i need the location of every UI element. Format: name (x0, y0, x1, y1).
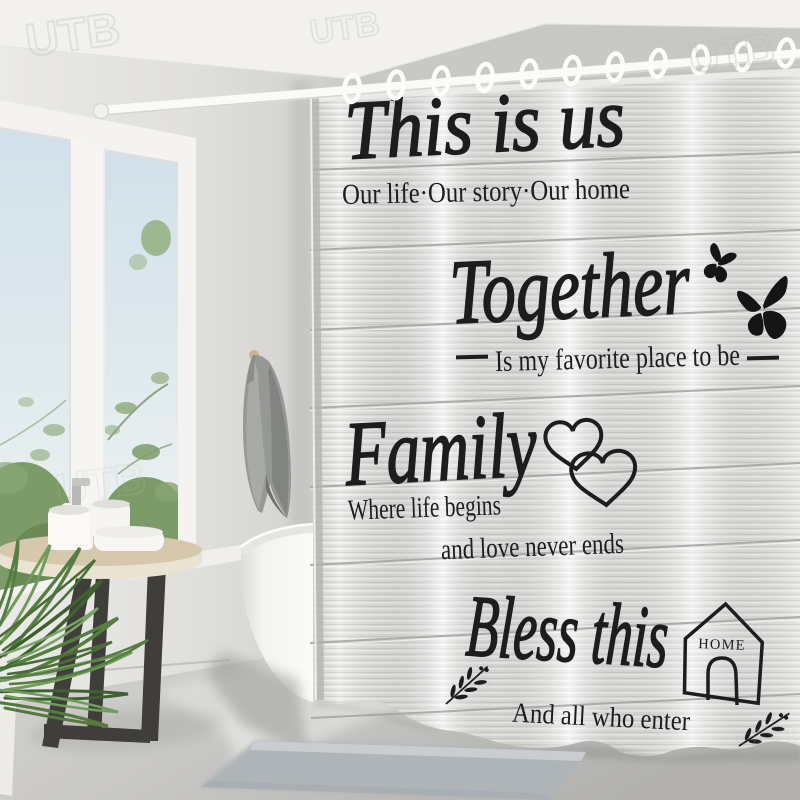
svg-text:Where life begins: Where life begins (347, 489, 501, 526)
svg-text:Family: Family (341, 393, 539, 505)
svg-text:and love never ends: and love never ends (440, 528, 624, 566)
svg-text:HOME: HOME (698, 636, 746, 654)
svg-text:Together: Together (448, 231, 693, 343)
svg-text:Our life·Our story·Our home: Our life·Our story·Our home (342, 173, 631, 211)
svg-text:Is my favorite place to be: Is my favorite place to be (495, 339, 741, 378)
svg-text:Bless this: Bless this (464, 578, 672, 687)
